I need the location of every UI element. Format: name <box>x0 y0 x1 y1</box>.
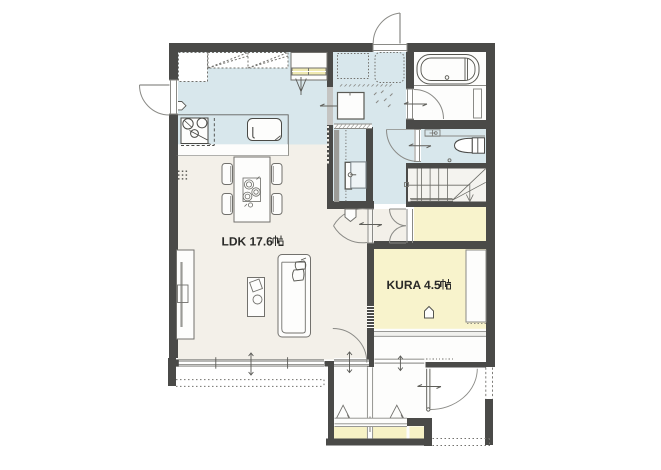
svg-text:KURA 4.5: KURA 4.5 <box>387 278 442 292</box>
svg-text:LDK 17.6: LDK 17.6 <box>222 234 274 248</box>
